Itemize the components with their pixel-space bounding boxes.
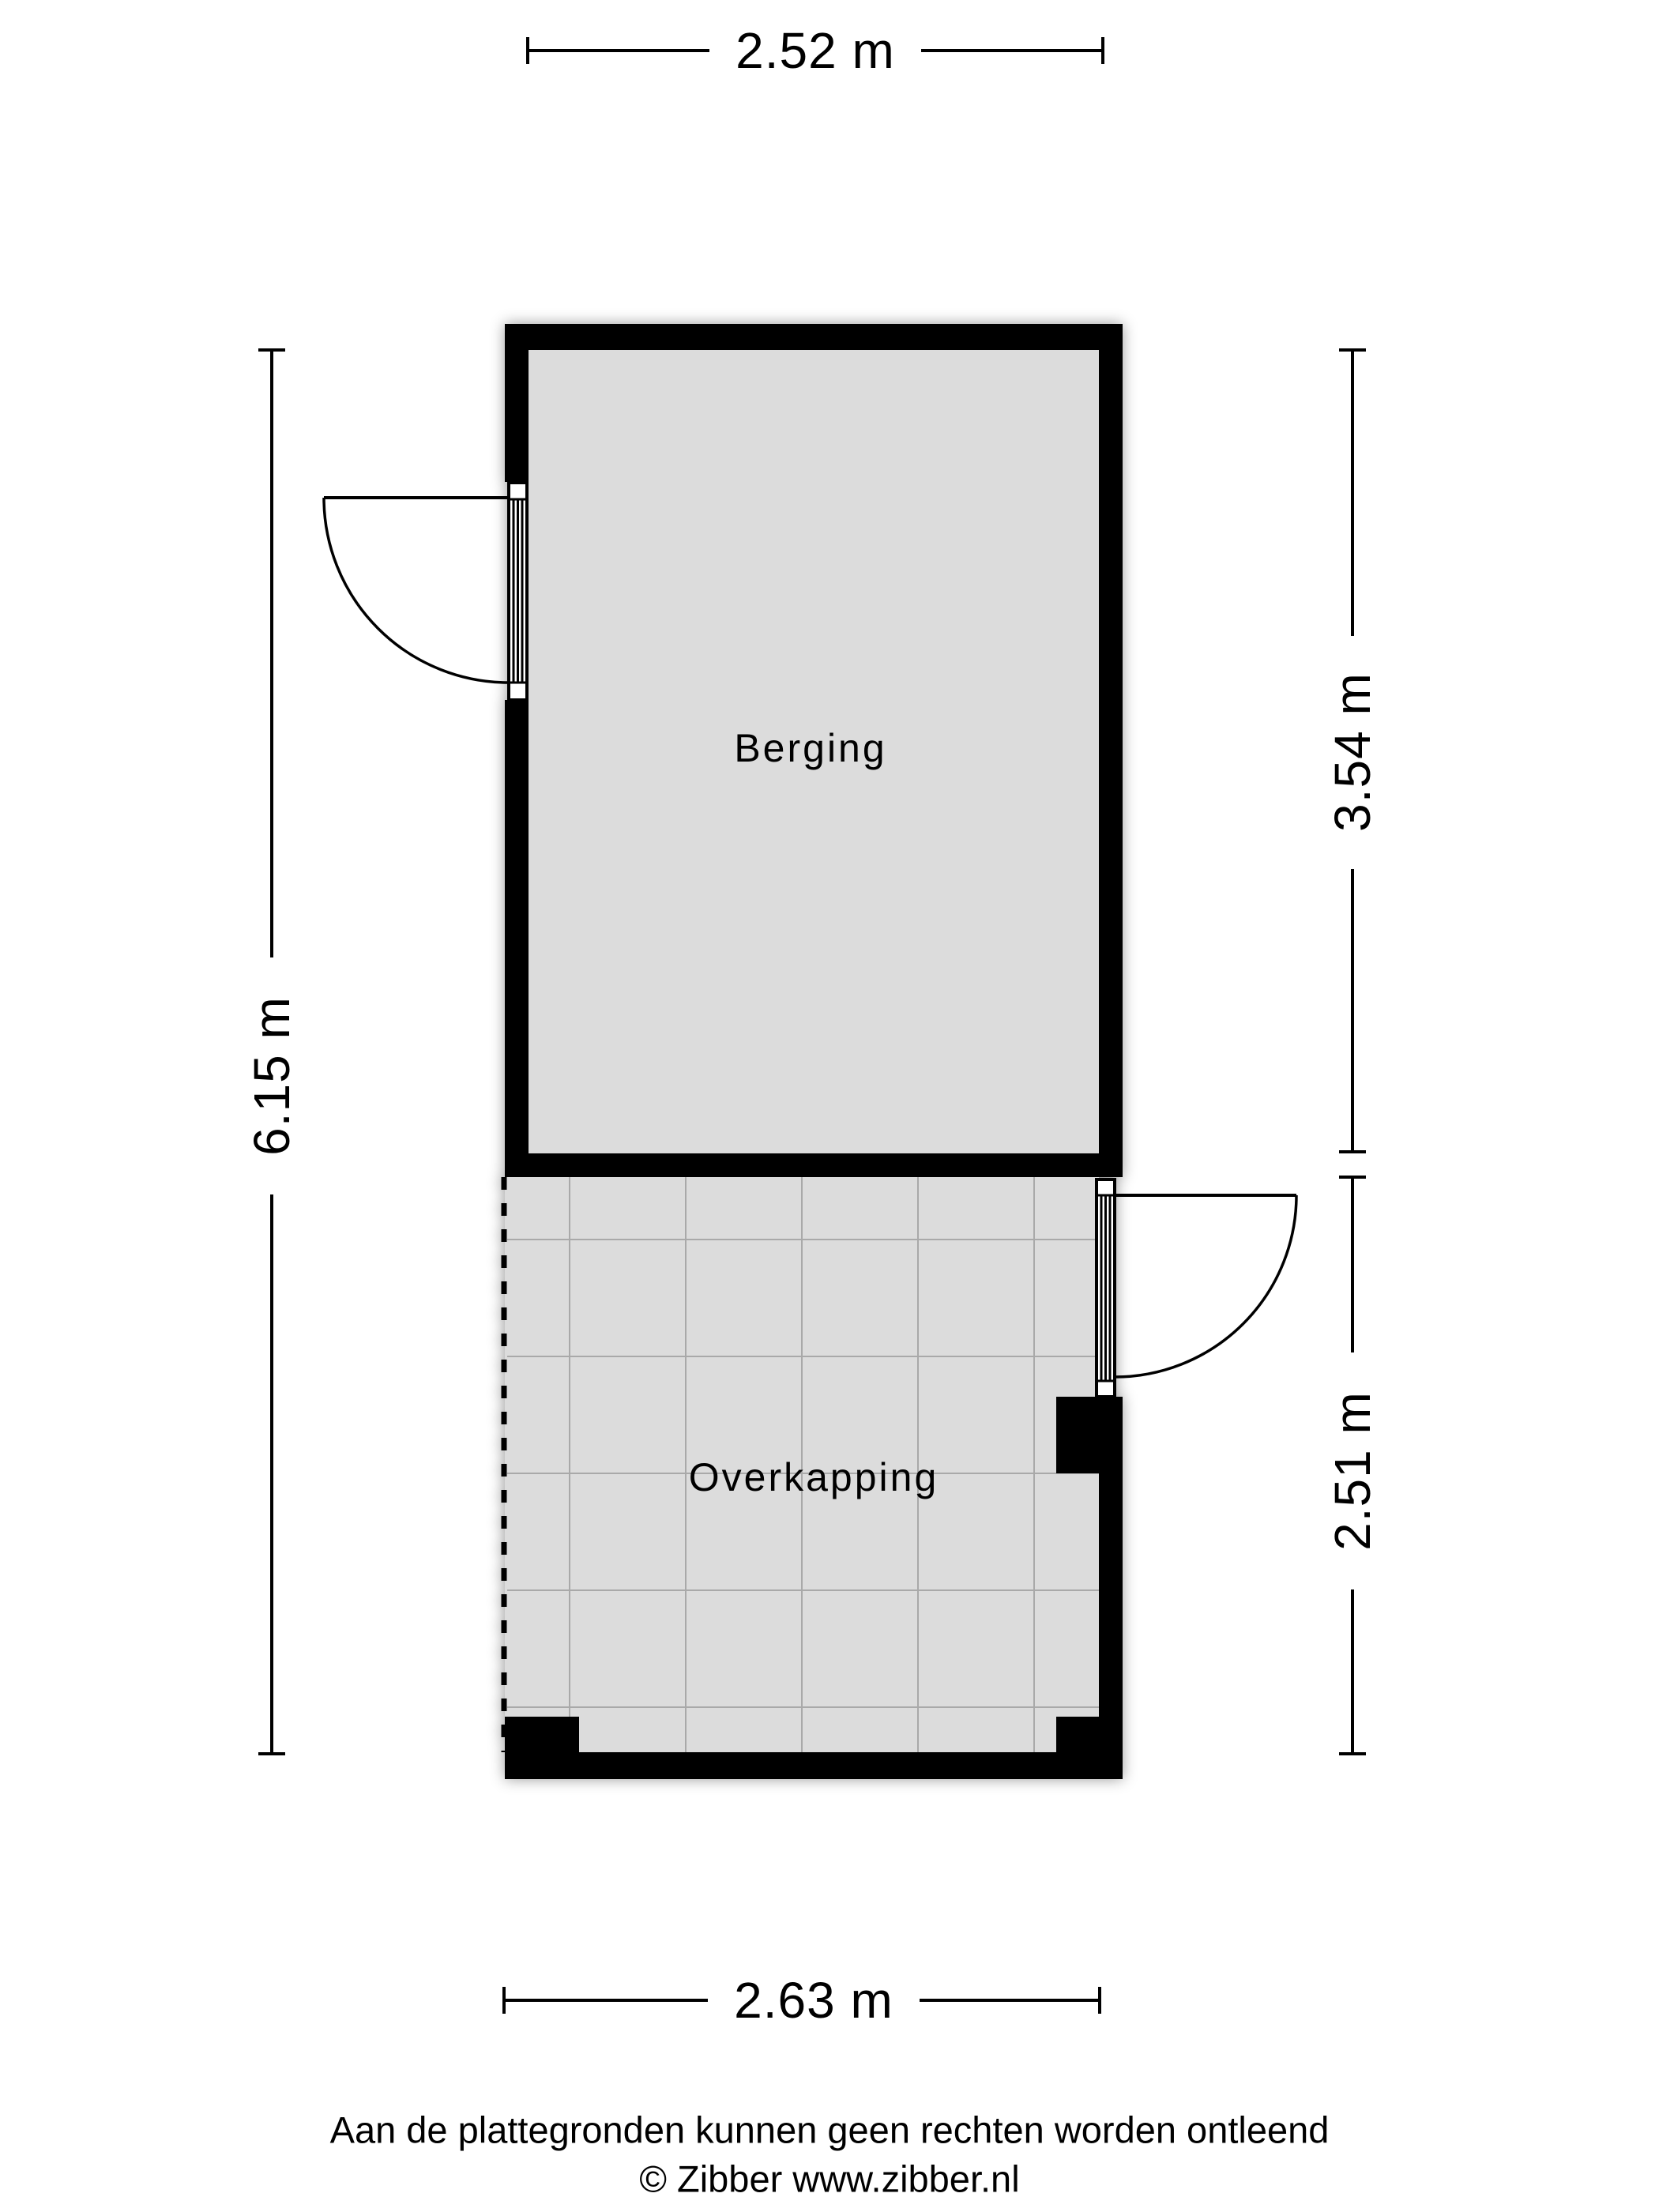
- left-wall-lower-segment: [505, 700, 529, 1177]
- dimension-bottom-label: 2.63 m: [734, 1972, 893, 2029]
- footer-copyright: © Zibber www.zibber.nl: [639, 2158, 1019, 2200]
- right-door-frame: [1097, 1179, 1115, 1397]
- berging-room-label: Berging: [734, 726, 886, 770]
- right-door-swing-arc: [1115, 1195, 1296, 1377]
- top-wall: [505, 324, 1123, 350]
- left-door-swing-arc: [324, 498, 509, 683]
- dimension-left: 6.15 m: [243, 350, 300, 1754]
- post-bottom-left: [505, 1717, 579, 1752]
- left-door-swing: [324, 498, 509, 683]
- middle-wall: [505, 1153, 1123, 1177]
- left-door-frame: [509, 483, 527, 700]
- post-bottom-right: [1056, 1717, 1123, 1752]
- right-wall: [1099, 324, 1123, 1177]
- dimension-top: 2.52 m: [528, 22, 1103, 79]
- wall-stub-block: [1056, 1397, 1123, 1473]
- dimension-right-lower: 2.51 m: [1324, 1177, 1381, 1754]
- dimension-bottom: 2.63 m: [504, 1972, 1100, 2029]
- lower-right-wall: [1099, 1473, 1123, 1752]
- bottom-wall: [505, 1752, 1123, 1779]
- overkapping-room-label: Overkapping: [689, 1455, 939, 1499]
- right-door-swing: [1115, 1195, 1296, 1377]
- dimension-right-upper-label: 3.54 m: [1324, 672, 1381, 832]
- dimension-right-upper: 3.54 m: [1324, 350, 1381, 1152]
- dimension-top-label: 2.52 m: [735, 22, 895, 79]
- floorplan-page: Berging Overkapping 2.52 m 6.15 m 3.54 m…: [0, 0, 1659, 2212]
- building: [504, 324, 1123, 1779]
- dimension-right-lower-label: 2.51 m: [1324, 1391, 1381, 1551]
- left-wall-upper-segment: [505, 324, 529, 482]
- dimension-left-label: 6.15 m: [243, 996, 300, 1156]
- footer-disclaimer: Aan de plattegronden kunnen geen rechten…: [330, 2109, 1330, 2151]
- floorplan-canvas: Berging Overkapping 2.52 m 6.15 m 3.54 m…: [0, 0, 1659, 2212]
